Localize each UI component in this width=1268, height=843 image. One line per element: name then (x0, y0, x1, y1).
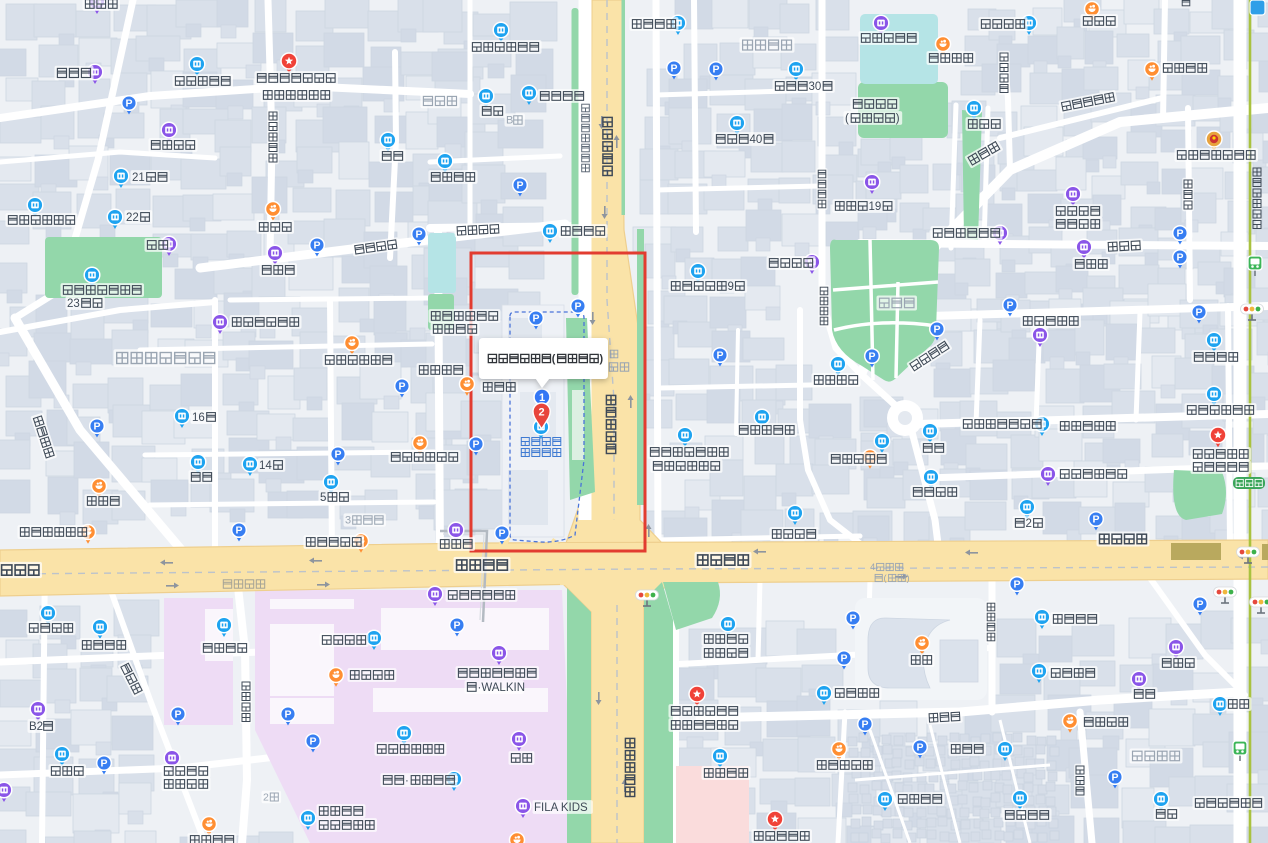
svg-text:P: P (415, 229, 422, 241)
svg-text:P: P (670, 63, 677, 75)
svg-text:P: P (712, 64, 719, 76)
svg-text:1: 1 (539, 392, 545, 404)
svg-text:P: P (840, 653, 847, 665)
svg-text:P: P (284, 709, 291, 721)
svg-text:P: P (1195, 307, 1202, 319)
svg-text:P: P (93, 421, 100, 433)
svg-text:P: P (453, 620, 460, 632)
svg-text:2: 2 (1026, 518, 1032, 530)
svg-text:P: P (868, 351, 875, 363)
svg-text:): ) (896, 113, 900, 125)
svg-text:22: 22 (126, 212, 139, 224)
svg-text:P: P (1092, 514, 1099, 526)
svg-text:2: 2 (263, 792, 269, 804)
svg-text:2: 2 (539, 407, 545, 419)
svg-text:19: 19 (869, 201, 882, 213)
svg-text:21: 21 (132, 172, 145, 184)
svg-text:40: 40 (750, 134, 763, 146)
svg-text:P: P (933, 324, 940, 336)
svg-text:P: P (498, 528, 505, 540)
svg-text:P: P (472, 439, 479, 451)
svg-text:P: P (235, 525, 242, 537)
svg-text:4: 4 (870, 562, 875, 573)
svg-text:P: P (1111, 772, 1118, 784)
svg-text:P: P (532, 313, 539, 325)
svg-text:): ) (907, 573, 910, 584)
svg-text:30: 30 (809, 81, 822, 93)
svg-text:5: 5 (320, 492, 326, 504)
svg-text:P: P (1013, 579, 1020, 591)
svg-text:P: P (916, 742, 923, 754)
svg-text:P: P (1176, 252, 1183, 264)
svg-text:P: P (1006, 300, 1013, 312)
svg-text:P: P (861, 719, 868, 731)
svg-text:·: · (405, 775, 409, 787)
svg-text:): ) (600, 353, 604, 365)
svg-text:P: P (174, 709, 181, 721)
svg-text:B2: B2 (29, 721, 43, 733)
svg-text:16: 16 (192, 412, 205, 424)
svg-text:P: P (1176, 228, 1183, 240)
svg-text:P: P (100, 758, 107, 770)
svg-text:14: 14 (259, 460, 272, 472)
svg-text:3: 3 (345, 515, 351, 527)
svg-text:P: P (516, 180, 523, 192)
svg-text:P: P (398, 381, 405, 393)
svg-text:P: P (125, 98, 132, 110)
svg-text:(: ( (845, 113, 849, 125)
svg-text:P: P (313, 240, 320, 252)
svg-text:9: 9 (728, 281, 734, 293)
svg-text:B: B (506, 115, 513, 127)
svg-text:·WALKIN: ·WALKIN (478, 682, 526, 694)
svg-text:P: P (309, 736, 316, 748)
svg-text:FILA KIDS: FILA KIDS (534, 802, 588, 814)
svg-text:P: P (1196, 599, 1203, 611)
svg-text:P: P (574, 301, 581, 313)
svg-text:23: 23 (67, 298, 80, 310)
svg-text:P: P (716, 350, 723, 362)
svg-text:P: P (334, 449, 341, 461)
svg-text:(: ( (552, 353, 556, 365)
svg-text:P: P (849, 613, 856, 625)
